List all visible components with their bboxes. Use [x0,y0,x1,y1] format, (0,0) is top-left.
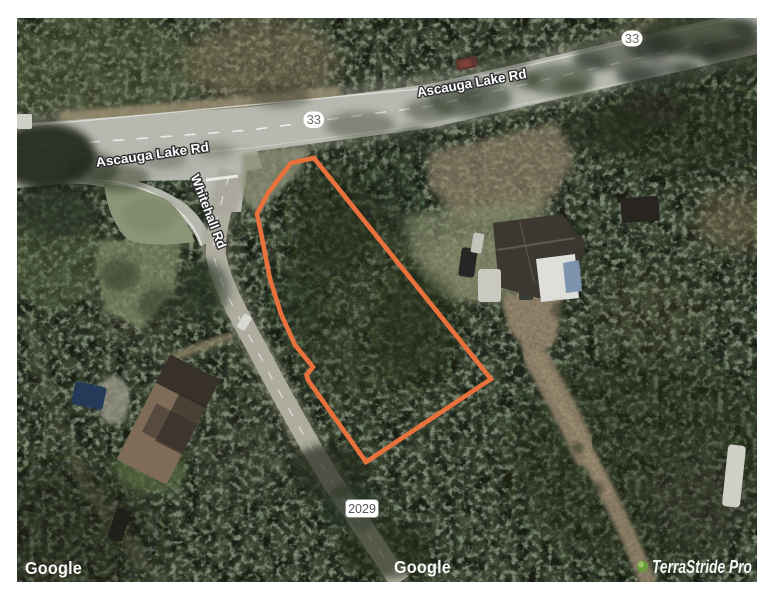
svg-text:Google: Google [25,558,82,578]
svg-text:33: 33 [307,112,321,127]
svg-text:TerraStride Pro: TerraStride Pro [652,557,752,577]
svg-text:33: 33 [625,31,639,46]
svg-text:2029: 2029 [348,502,376,516]
svg-text:Google: Google [394,557,451,577]
